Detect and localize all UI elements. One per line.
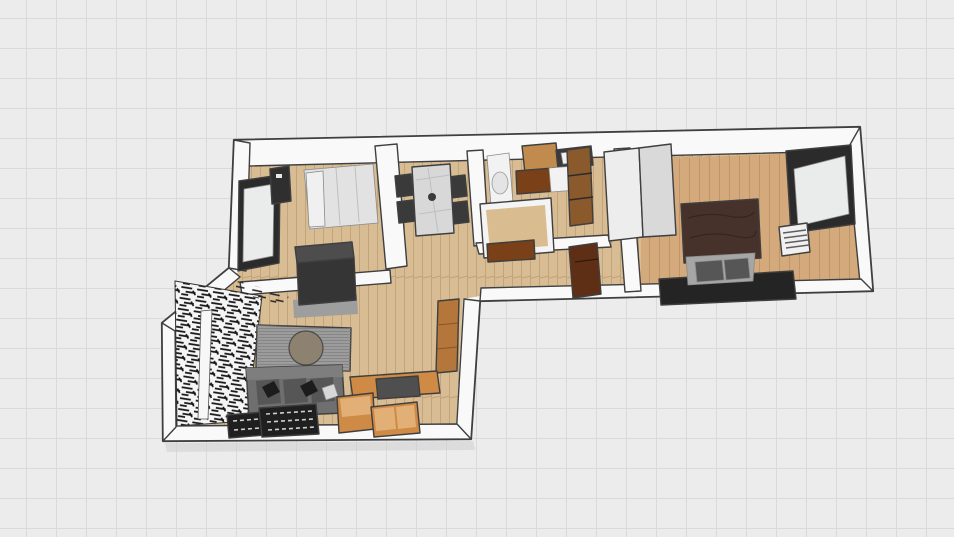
round-mirror [289, 331, 323, 365]
tall-wardrobe-side [639, 144, 676, 237]
window-glass-left [243, 184, 274, 262]
storage-column-wood [436, 299, 459, 373]
bed-pillow [724, 258, 750, 280]
toilet-bowl [492, 172, 508, 194]
radiator [779, 223, 810, 256]
slab-shadow [165, 441, 475, 452]
dining-chair [395, 174, 413, 197]
window-glass-right [794, 156, 849, 226]
bed-pillow [695, 260, 724, 282]
wall-panel-dark [270, 166, 291, 204]
sectional-cushion [340, 396, 372, 417]
bed-white-pillow [306, 171, 325, 227]
sectional-cushion [396, 405, 416, 429]
wardrobe-dark-front [297, 258, 356, 305]
wall-panel-spot [276, 174, 282, 178]
design-canvas[interactable] [0, 0, 954, 537]
sectional-cushion [374, 407, 396, 431]
door-panel-brown [569, 243, 601, 298]
floor-plan-3d-view [0, 0, 954, 537]
tall-wardrobe-front [604, 148, 643, 241]
table-centerpiece [428, 193, 436, 201]
coffee-table-dark [376, 376, 420, 399]
mirror-panel-wood [567, 147, 593, 226]
vanity-front-brown [487, 240, 535, 262]
dining-chair [397, 200, 415, 223]
wall-west [162, 323, 176, 441]
